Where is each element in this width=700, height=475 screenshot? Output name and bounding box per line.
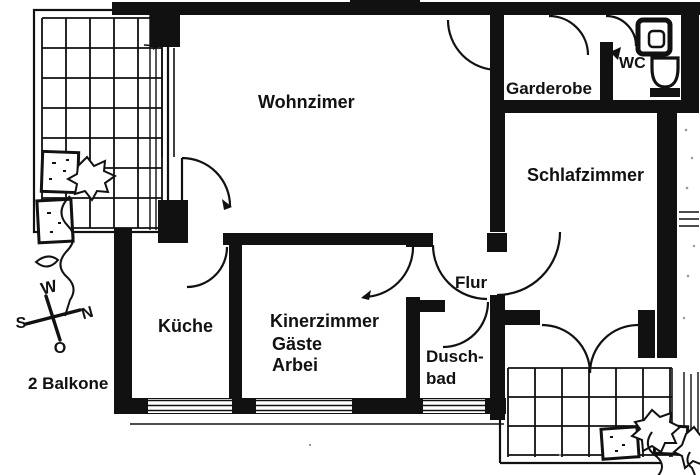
wall-duschbad-north xyxy=(420,300,445,312)
wall-schlafzimmer-west xyxy=(490,100,505,232)
wall-garderobe-west xyxy=(490,13,504,110)
room-label-kinderzimmer-2: Gäste xyxy=(272,334,322,354)
compass-north-label: N xyxy=(80,304,96,324)
wall-left xyxy=(114,228,132,412)
window-duschbad xyxy=(423,399,485,413)
compass-south-label: S xyxy=(16,315,27,332)
door-arc-wc xyxy=(606,16,636,46)
left-balcony-tile-grid xyxy=(42,18,162,228)
annotation-balconies: 2 Balkone xyxy=(28,374,108,393)
compass-cross xyxy=(26,296,80,340)
wall-wc-divider xyxy=(600,42,613,100)
planter-box xyxy=(41,151,78,192)
door-arc-livingroom-balcony xyxy=(182,158,230,206)
wall-kitchen-divider xyxy=(229,243,242,398)
room-label-kueche: Küche xyxy=(158,316,213,336)
compass-east-label: O xyxy=(54,340,66,357)
wall-duschbad-east xyxy=(490,295,505,420)
door-arc-duschbad xyxy=(443,302,488,347)
planter-box xyxy=(37,199,73,243)
wall-kinderzimmer-divider xyxy=(406,297,420,400)
window-kitchen xyxy=(148,399,232,413)
floor-plan-drawing: W N S O Wohnzimer Garderobe WC Schlafzim… xyxy=(0,0,700,475)
wall-east-top xyxy=(681,2,699,113)
sink-basin-icon xyxy=(649,31,664,47)
wall-livingroom-south xyxy=(223,233,433,245)
compass-rose: W N S O xyxy=(16,276,96,357)
wall-stub-balcony-bottom xyxy=(158,200,188,243)
room-label-kinderzimmer-3: Arbei xyxy=(272,355,318,375)
planter-box xyxy=(601,427,639,459)
wall-top-notch xyxy=(350,0,420,15)
door-arc-balcony-french-right xyxy=(590,325,638,373)
room-label-duschbad-2: bad xyxy=(426,369,456,388)
toilet-icon xyxy=(652,58,678,87)
wall-flur-corner xyxy=(406,233,433,247)
wall-east-main xyxy=(657,100,677,358)
door-arc-kitchen xyxy=(187,247,227,287)
door-arc-garderobe xyxy=(549,16,588,55)
door-arrowheads xyxy=(222,199,371,300)
floor-plan-canvas: W N S O Wohnzimer Garderobe WC Schlafzim… xyxy=(0,0,700,475)
walls xyxy=(112,0,700,420)
toilet-base xyxy=(650,88,680,97)
room-label-wohnzimmer: Wohnzimer xyxy=(258,92,355,112)
wall-flur-junction xyxy=(487,233,507,252)
wall-schlafzimmer-south-left xyxy=(505,310,540,325)
room-label-duschbad-1: Dusch- xyxy=(426,347,484,366)
compass-west-label: W xyxy=(39,276,60,299)
door-arc-kinderzimmer xyxy=(363,247,413,297)
wall-stub-balcony-top xyxy=(150,13,180,47)
window-livingroom-west xyxy=(162,48,174,157)
window-schlafzimmer-east xyxy=(679,212,699,226)
room-label-wc: WC xyxy=(619,55,646,72)
room-label-garderobe: Garderobe xyxy=(506,79,592,98)
plant-leaf xyxy=(36,256,58,266)
room-label-flur: Flur xyxy=(455,273,487,292)
wall-schlafzimmer-south-right xyxy=(638,310,655,358)
door-arc-balcony-french-left xyxy=(542,325,590,373)
room-label-kinderzimmer-1: Kinerzimmer xyxy=(270,311,379,331)
window-kinderzimmer xyxy=(256,399,352,413)
room-label-schlafzimmer: Schlafzimmer xyxy=(527,165,644,185)
